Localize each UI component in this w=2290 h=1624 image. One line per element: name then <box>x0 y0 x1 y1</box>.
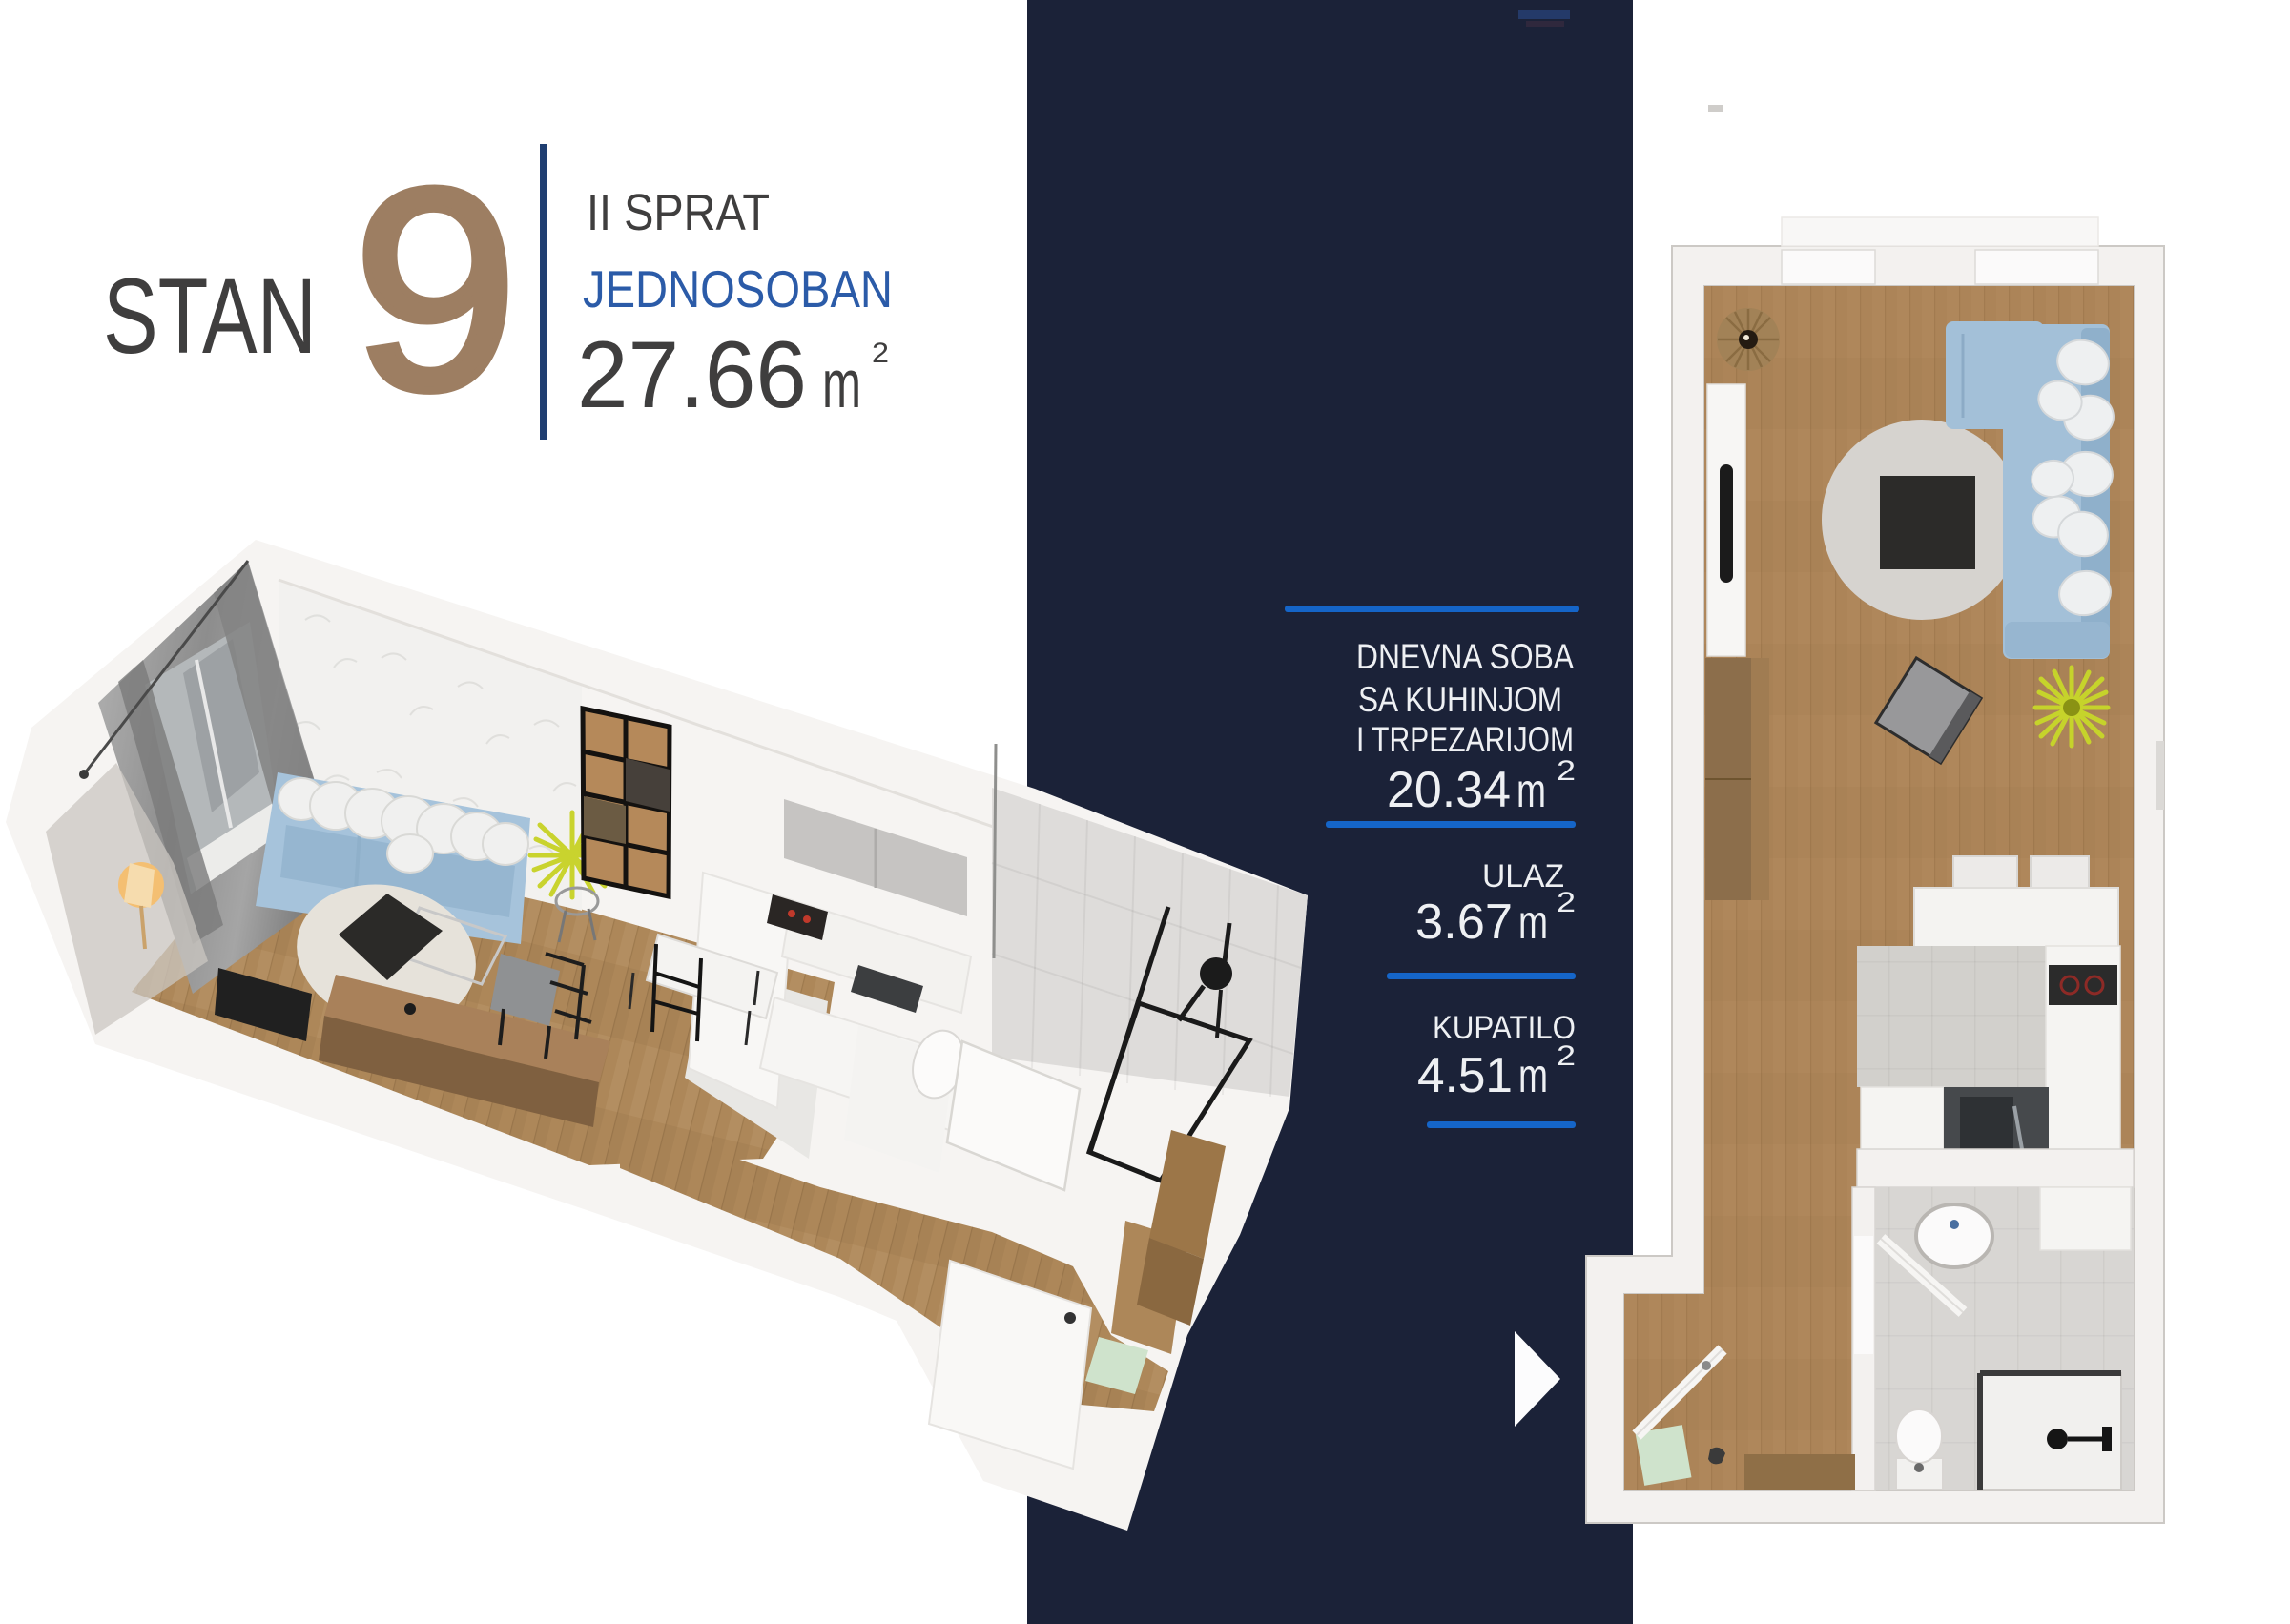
svg-text:m: m <box>1516 764 1546 817</box>
svg-text:I TRPEZARIJOM: I TRPEZARIJOM <box>1356 720 1574 759</box>
svg-text:m: m <box>1518 895 1548 949</box>
svg-text:II SPRAT: II SPRAT <box>587 184 770 241</box>
svg-text:m: m <box>1518 1049 1548 1102</box>
svg-text:2: 2 <box>1557 887 1576 918</box>
svg-text:ULAZ: ULAZ <box>1482 858 1564 894</box>
svg-text:20.34: 20.34 <box>1387 762 1511 818</box>
svg-text:2: 2 <box>1557 1040 1576 1072</box>
svg-text:2: 2 <box>872 338 889 369</box>
svg-text:m: m <box>822 347 861 422</box>
svg-text:DNEVNA SOBA: DNEVNA SOBA <box>1356 637 1574 676</box>
svg-text:2: 2 <box>1557 755 1576 787</box>
svg-text:27.66: 27.66 <box>577 321 807 427</box>
svg-text:KUPATILO: KUPATILO <box>1433 1010 1576 1046</box>
svg-text:3.67: 3.67 <box>1415 894 1513 950</box>
svg-text:JEDNOSOBAN: JEDNOSOBAN <box>583 259 893 319</box>
svg-text:4.51: 4.51 <box>1417 1048 1513 1103</box>
svg-text:SA KUHINJOM: SA KUHINJOM <box>1358 680 1562 719</box>
svg-text:STAN: STAN <box>103 257 317 376</box>
svg-text:9: 9 <box>353 129 518 449</box>
